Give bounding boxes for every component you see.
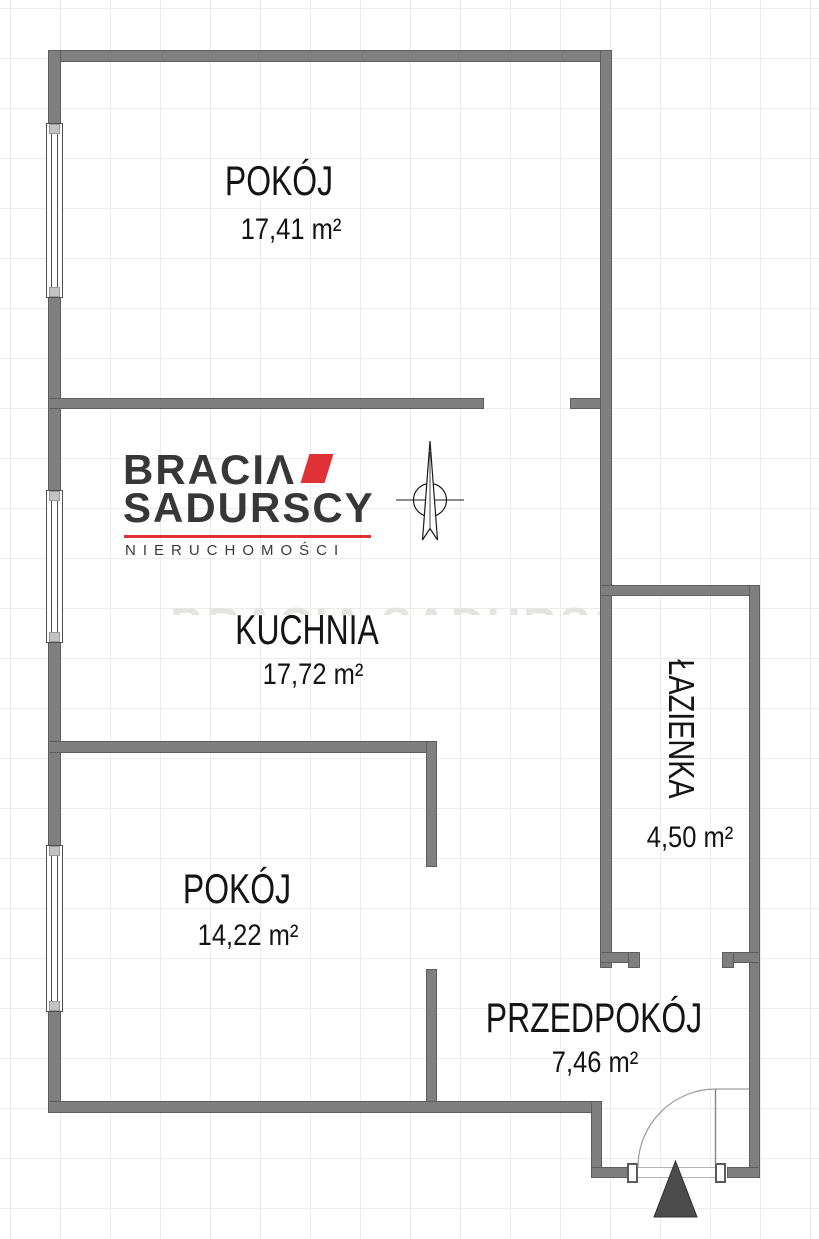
- window-symbol: [46, 123, 63, 298]
- door-frame-right: [715, 1163, 726, 1183]
- wall-segment-entry-right: [727, 1167, 760, 1178]
- wall-segment-outer-top: [48, 50, 611, 62]
- room-area-lazienka: 4,50 m²: [647, 821, 733, 855]
- window-glass-icon: [51, 134, 58, 287]
- floor-plan: BRACIA SADURSCY: [0, 0, 819, 1239]
- wall-segment-room2-hall-lower: [426, 969, 437, 1102]
- wall-segment-kitchen-room2: [48, 741, 437, 753]
- wall-segment-room1-kitchen: [48, 398, 484, 409]
- wall-segment-bath-right: [749, 585, 760, 1178]
- room-area-pokoj-1: 17,41 m²: [241, 213, 342, 247]
- window-sill-icon: [49, 846, 60, 856]
- wall-segment-outer-right: [600, 50, 612, 968]
- window-sill-icon: [49, 124, 60, 134]
- entrance-door-arc: [638, 1089, 749, 1167]
- wall-segment-room1-kitchen-right: [570, 398, 601, 409]
- room-label-pokoj-2: POKÓJ: [183, 865, 291, 913]
- wall-segment-bath-top: [600, 585, 760, 596]
- window-symbol: [46, 845, 63, 1012]
- window-glass-icon: [51, 501, 58, 632]
- window-sill-icon: [49, 287, 60, 297]
- room-label-przedpokoj: PRZEDPOKÓJ: [486, 994, 702, 1042]
- window-glass-icon: [51, 856, 58, 1001]
- door-threshold: [638, 1167, 715, 1178]
- logo-underline: [124, 535, 371, 538]
- wall-segment-outer-bottom: [48, 1101, 592, 1113]
- window-sill-icon: [49, 1001, 60, 1011]
- logo-tagline: NIERUCHOMOŚCI: [125, 542, 345, 559]
- logo-line2: SADURSCY: [123, 490, 375, 526]
- room-area-przedpokoj: 7,46 m²: [552, 1046, 638, 1080]
- logo-line1: BRACIΛ: [123, 452, 329, 488]
- window-sill-icon: [49, 491, 60, 501]
- north-compass-icon: [396, 441, 464, 540]
- window-sill-icon: [49, 632, 60, 642]
- room-area-kuchnia: 17,72 m²: [263, 658, 364, 692]
- logo-red-mark-icon: [301, 454, 334, 483]
- wall-segment-room2-hall-upper: [426, 741, 437, 867]
- window-symbol: [46, 490, 63, 643]
- room-area-pokoj-2: 14,22 m²: [198, 919, 299, 953]
- door-frame-left: [627, 1163, 638, 1183]
- plan-symbols-layer: [0, 0, 819, 1239]
- room-label-lazienka: ŁAZIENKA: [660, 659, 702, 798]
- wall-segment-bath-door-jamb-left: [628, 952, 640, 968]
- wall-segment-bath-door-jamb-right: [722, 952, 734, 968]
- room-label-kuchnia: KUCHNIA: [235, 606, 379, 654]
- wall-segment-entry-left: [591, 1167, 629, 1178]
- room-label-pokoj-1: POKÓJ: [225, 157, 333, 205]
